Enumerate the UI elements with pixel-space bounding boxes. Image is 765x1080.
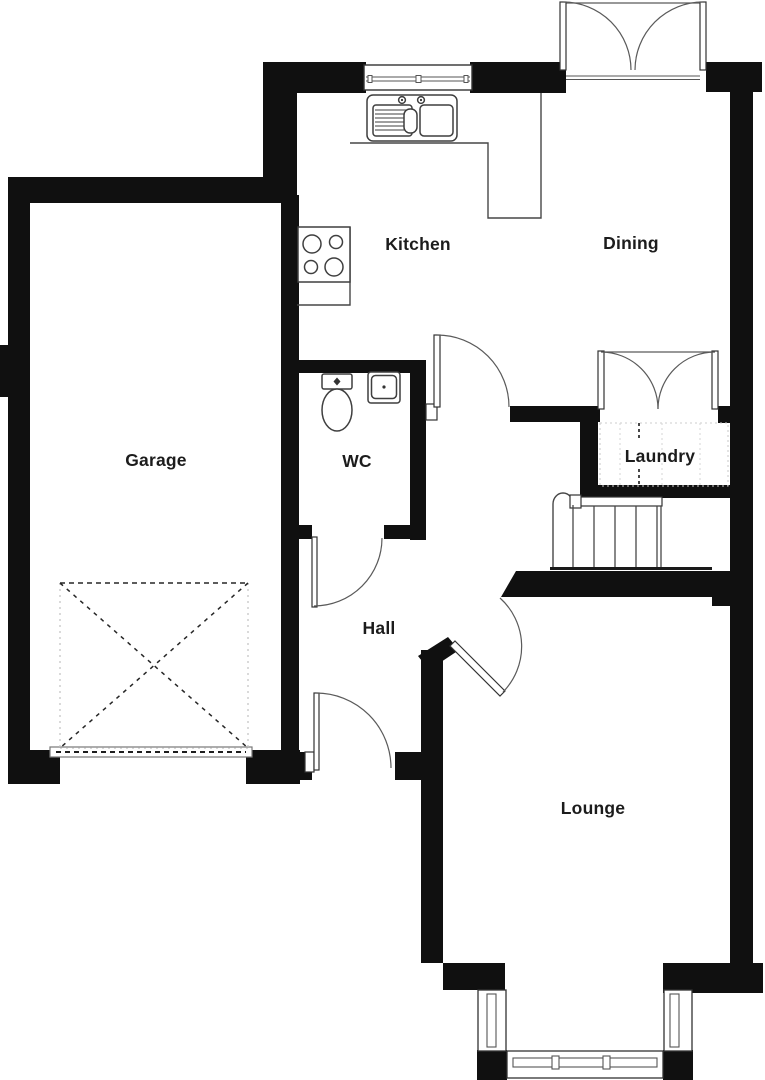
laundry-french-doors-icon (598, 351, 718, 409)
lounge-hall-door-icon (450, 598, 522, 696)
kitchen-hob-icon (298, 227, 350, 282)
room-label-garage: Garage (125, 450, 187, 470)
walls (0, 62, 763, 1080)
room-label-kitchen: Kitchen (385, 234, 451, 254)
staircase-icon (550, 493, 712, 569)
wc-door-icon (312, 537, 382, 607)
toilet-icon (322, 374, 352, 431)
room-label-hall: Hall (363, 618, 396, 638)
front-door-icon (314, 693, 391, 770)
kitchen-window-icon (364, 65, 472, 90)
floor-plan: Garage Kitchen Dining WC Laundry Hall Lo… (0, 0, 765, 1080)
kitchen-sink-icon (367, 95, 457, 141)
kitchen-hall-door-icon (434, 335, 509, 407)
room-label-lounge: Lounge (561, 798, 625, 818)
wash-basin-icon (368, 372, 400, 403)
room-label-dining: Dining (603, 233, 659, 253)
bay-window-icon (478, 990, 692, 1078)
dining-french-doors-icon (560, 2, 706, 80)
floor-plan-drawing: Garage Kitchen Dining WC Laundry Hall Lo… (0, 0, 765, 1080)
room-label-laundry: Laundry (625, 446, 696, 466)
garage-door-swing-icon (60, 583, 248, 748)
room-label-wc: WC (342, 451, 372, 471)
